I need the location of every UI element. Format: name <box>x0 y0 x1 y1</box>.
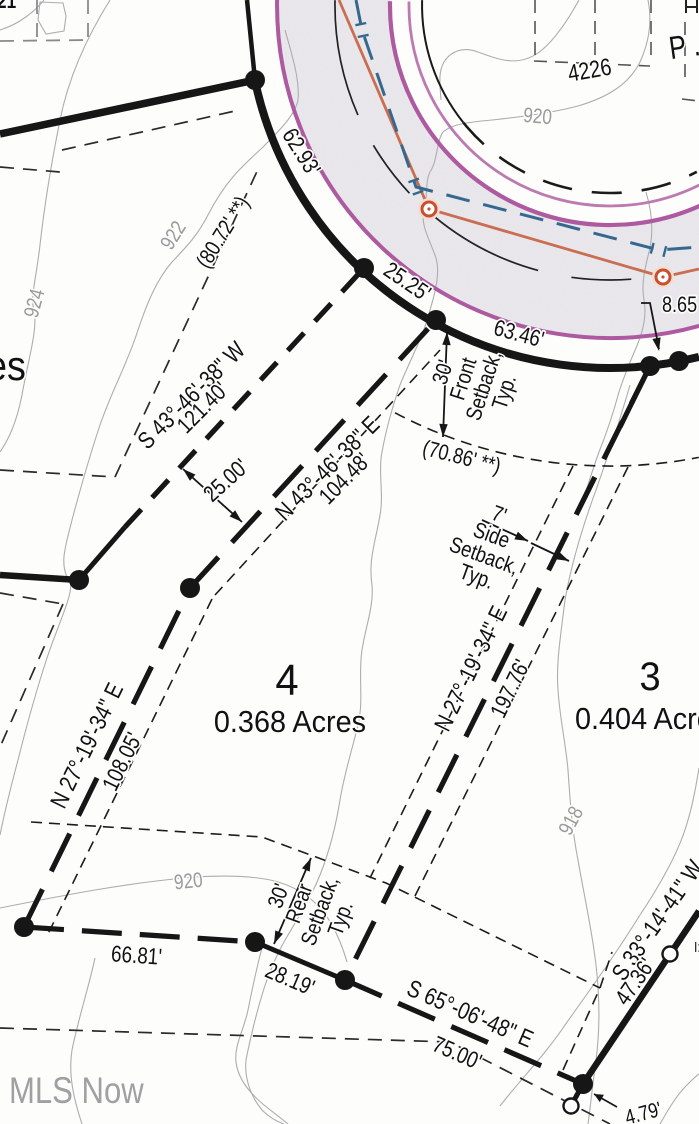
svg-text:8.65: 8.65 <box>662 293 697 317</box>
svg-text:0.404 Acres: 0.404 Acres <box>575 702 699 736</box>
svg-text:66.81': 66.81' <box>110 942 162 971</box>
svg-text:I:: I: <box>694 939 699 955</box>
svg-text:920: 920 <box>173 869 204 895</box>
svg-text:P .: P . <box>667 28 699 67</box>
svg-text:0.368 Acres: 0.368 Acres <box>214 705 366 739</box>
svg-text:es: es <box>0 343 26 389</box>
svg-text:MLS Now: MLS Now <box>9 1071 144 1112</box>
svg-text:3: 3 <box>639 655 660 699</box>
svg-text:4: 4 <box>275 656 298 705</box>
svg-text:21: 21 <box>0 0 16 13</box>
svg-text:920: 920 <box>522 104 553 129</box>
